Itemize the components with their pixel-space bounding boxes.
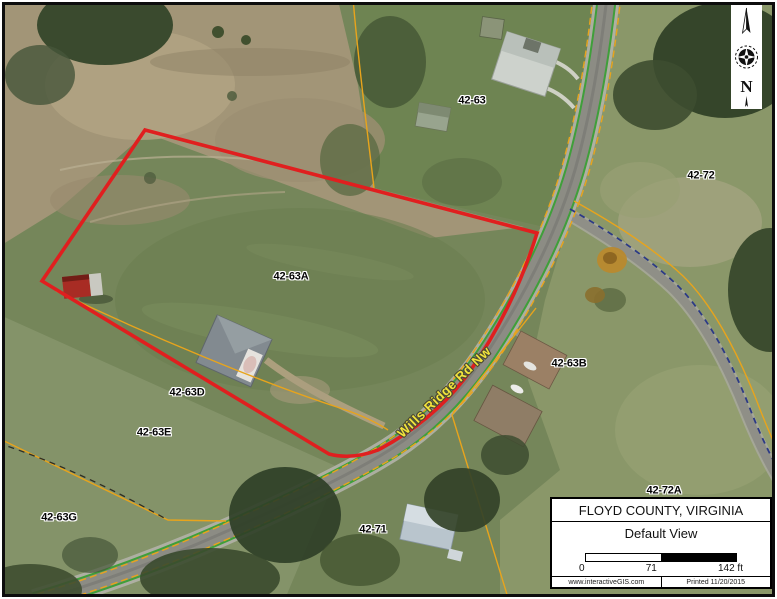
- legend-printed-date: Printed 11/20/2015: [662, 577, 771, 587]
- scale-bar: [585, 553, 737, 562]
- north-needle-dark: [747, 8, 751, 33]
- north-letter: N: [740, 77, 753, 96]
- north-tail: [745, 96, 748, 107]
- legend-region-title: FLOYD COUNTY, VIRGINIA: [552, 499, 770, 522]
- parcel-label-42-63E: 42-63E: [137, 428, 171, 439]
- map-viewport: 42-63 42-72 42-63A 42-63B 42-63D 42-63E …: [2, 2, 775, 597]
- green-shed: [480, 17, 505, 40]
- north-needle-light: [743, 8, 747, 33]
- parcel-label-42-63A: 42-63A: [274, 272, 309, 283]
- scale-end: 142 ft: [718, 563, 743, 574]
- legend-website: www.interactiveGIS.com: [552, 577, 662, 587]
- north-arrow: N: [731, 3, 762, 109]
- parcel-label-42-72: 42-72: [687, 171, 714, 182]
- scale-bar-block: 0 71 142 ft: [552, 541, 770, 576]
- parcel-label-42-63B: 42-63B: [552, 359, 587, 370]
- scale-bar-right-half: [662, 554, 737, 561]
- parcel-label-42-63: 42-63: [458, 96, 485, 107]
- parcel-label-42-72A: 42-72A: [647, 486, 682, 497]
- legend-footer: www.interactiveGIS.com Printed 11/20/201…: [552, 576, 770, 587]
- legend-view-name: Default View: [552, 522, 770, 541]
- shed-4263: [415, 102, 451, 131]
- scale-mid: 71: [646, 563, 657, 574]
- scale-bar-left-half: [586, 554, 662, 561]
- parcel-label-42-63D: 42-63D: [170, 388, 205, 399]
- parcel-label-42-63G: 42-63G: [41, 513, 77, 524]
- parcel-label-42-71: 42-71: [359, 525, 386, 536]
- legend-box: FLOYD COUNTY, VIRGINIA Default View 0 71…: [550, 497, 772, 589]
- scale-start: 0: [579, 563, 585, 574]
- map-frame: 42-63 42-72 42-63A 42-63B 42-63D 42-63E …: [0, 0, 777, 599]
